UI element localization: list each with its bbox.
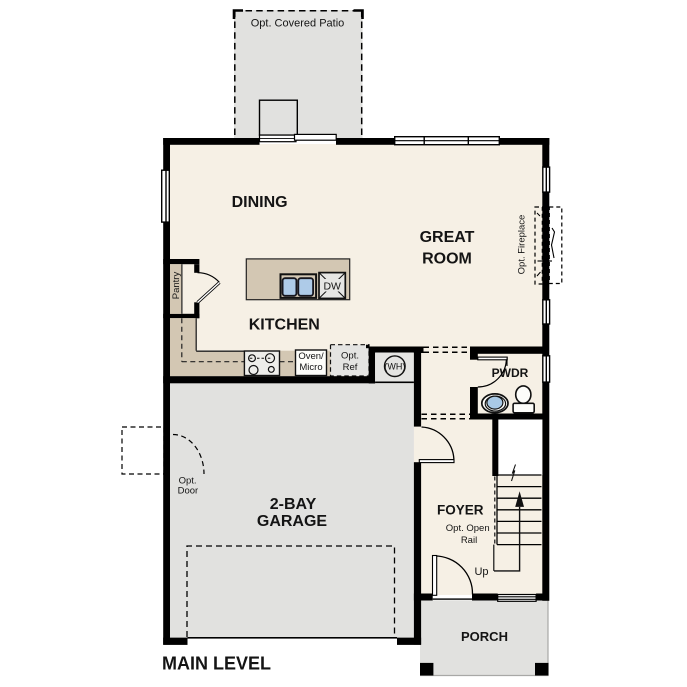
- svg-text:ROOM: ROOM: [422, 250, 472, 267]
- svg-text:Opt. Covered Patio: Opt. Covered Patio: [251, 18, 345, 30]
- svg-text:PWDR: PWDR: [492, 366, 529, 380]
- svg-text:Opt.: Opt.: [341, 351, 359, 362]
- svg-text:DINING: DINING: [232, 194, 288, 211]
- svg-text:PORCH: PORCH: [461, 629, 508, 644]
- svg-text:Up: Up: [474, 566, 488, 578]
- svg-text:GARAGE: GARAGE: [257, 513, 328, 530]
- svg-text:DW: DW: [323, 281, 341, 293]
- svg-text:KITCHEN: KITCHEN: [249, 317, 320, 334]
- svg-text:Pantry: Pantry: [171, 272, 182, 300]
- svg-text:MAIN LEVEL: MAIN LEVEL: [162, 654, 271, 674]
- svg-text:FOYER: FOYER: [437, 502, 484, 517]
- svg-text:Opt. Open: Opt. Open: [446, 523, 490, 534]
- svg-text:Rail: Rail: [461, 535, 477, 546]
- svg-text:2-BAY: 2-BAY: [270, 496, 317, 513]
- svg-text:(WH): (WH): [384, 361, 405, 371]
- svg-text:Ref: Ref: [343, 362, 358, 373]
- svg-text:Opt. Fireplace: Opt. Fireplace: [517, 215, 528, 275]
- svg-text:GREAT: GREAT: [420, 229, 475, 246]
- svg-text:Oven/: Oven/: [298, 351, 324, 362]
- svg-text:Micro: Micro: [299, 362, 322, 373]
- svg-text:Door: Door: [178, 486, 199, 497]
